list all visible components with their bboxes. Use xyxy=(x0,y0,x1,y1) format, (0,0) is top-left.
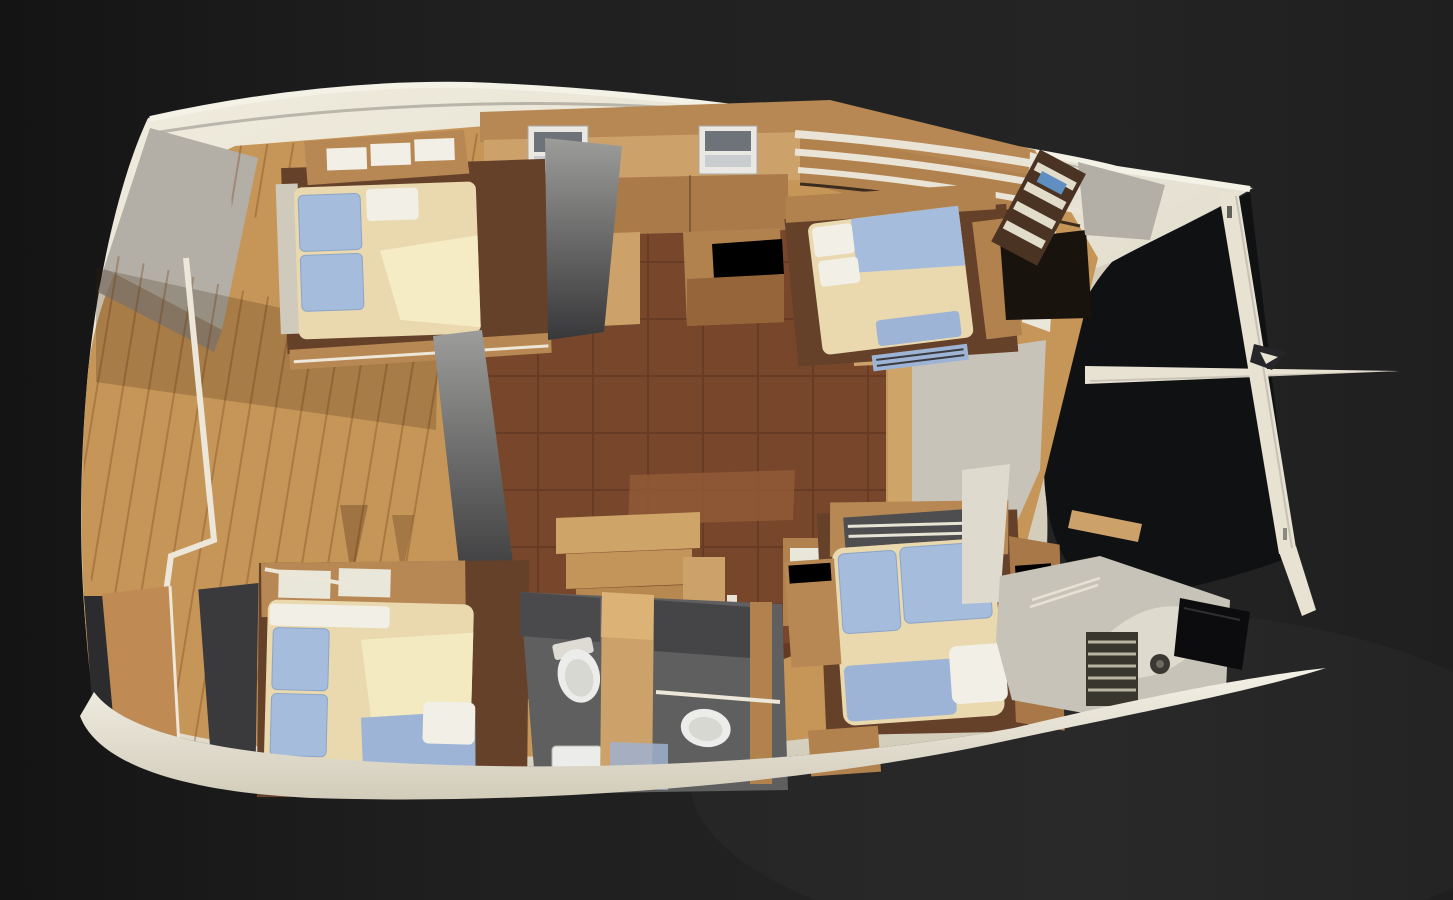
bed-throw-white xyxy=(422,701,475,744)
bed-pillow-white xyxy=(366,187,419,221)
bed-pillow-white xyxy=(269,603,390,628)
bathroom-left-wall xyxy=(520,592,600,642)
render-canvas xyxy=(0,0,1453,900)
bed-pillow-blue xyxy=(272,627,330,690)
bed-port-forward xyxy=(294,181,481,339)
bathroom-right-wall xyxy=(654,600,750,658)
sprit-slot xyxy=(1227,206,1232,218)
vent-grate xyxy=(1086,632,1138,706)
galley-sink-right xyxy=(699,126,757,174)
bed-pillow-blue xyxy=(270,693,328,756)
step xyxy=(556,512,700,554)
bed-pillow-white xyxy=(812,223,855,258)
bed-foot-throw xyxy=(844,658,958,722)
step xyxy=(566,549,692,589)
bed-starboard-forward xyxy=(807,206,974,356)
headboard-cabinet xyxy=(414,138,455,161)
island-lit-top xyxy=(712,239,784,279)
cabin-starboard-forward xyxy=(778,170,1025,380)
bed-pillow-white xyxy=(818,256,861,287)
sprit-slot xyxy=(1283,528,1287,540)
cabin-port-forward xyxy=(274,127,552,370)
cabinet-lit-top xyxy=(788,563,831,584)
island-front xyxy=(687,274,784,326)
winch-top xyxy=(1156,660,1164,668)
bed-pillow-blue xyxy=(298,193,362,251)
sink-front xyxy=(705,155,751,167)
bed-port-aft xyxy=(263,599,480,782)
yacht-interior-render xyxy=(0,0,1453,900)
sink-basin xyxy=(705,131,751,151)
bed-pillow-blue xyxy=(300,253,364,311)
shower-wall-top xyxy=(601,592,654,640)
side-table xyxy=(683,557,725,603)
headboard-cabinet xyxy=(326,147,367,170)
bed-pillow-blue xyxy=(838,550,901,634)
bathroom-wood-wall xyxy=(750,602,772,784)
cabin-left-cabinet xyxy=(784,558,841,667)
winch xyxy=(1150,654,1170,674)
headboard-cabinet xyxy=(370,143,411,166)
